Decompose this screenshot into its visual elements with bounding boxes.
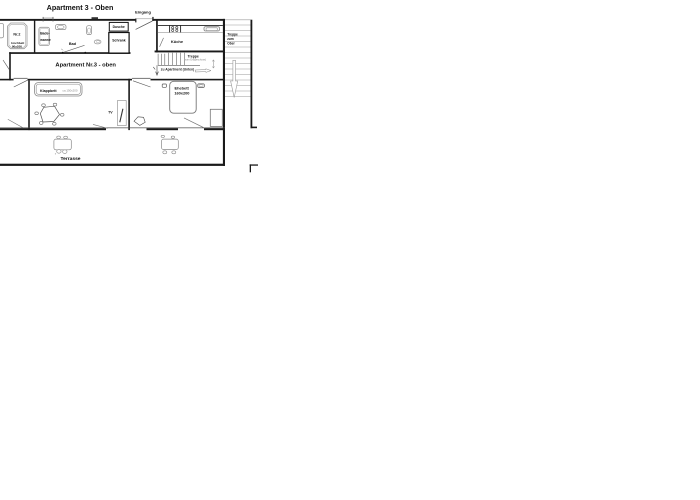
svg-text:TV: TV: [108, 111, 113, 115]
svg-text:wanne: wanne: [39, 38, 51, 42]
svg-text:zu Apartment (Unten): zu Apartment (Unten): [161, 67, 194, 71]
svg-text:Bade-: Bade-: [40, 32, 49, 36]
svg-text:Nr.2: Nr.2: [13, 32, 20, 36]
svg-text:90x200: 90x200: [12, 44, 22, 48]
svg-text:zum: zum: [227, 37, 234, 41]
svg-text:Treppe: Treppe: [227, 33, 238, 37]
svg-text:Schrank: Schrank: [112, 39, 125, 43]
svg-text:Terrasse: Terrasse: [60, 156, 80, 162]
svg-text:160x200: 160x200: [174, 90, 189, 95]
svg-text:Apartment Nr.3 - oben: Apartment Nr.3 - oben: [55, 62, 116, 68]
svg-text:Bad: Bad: [69, 42, 77, 46]
svg-text:Ober: Ober: [227, 41, 235, 45]
svg-text:Klappbett: Klappbett: [40, 89, 57, 93]
svg-text:(zum Erdgeschoss): (zum Erdgeschoss): [184, 57, 206, 61]
svg-text:Apartment 3 - Oben: Apartment 3 - Oben: [47, 3, 114, 12]
svg-text:Eingang: Eingang: [135, 10, 151, 15]
svg-text:Dusche: Dusche: [113, 25, 125, 29]
svg-text:ca.150x200: ca.150x200: [63, 89, 78, 93]
svg-text:Küche: Küche: [171, 39, 184, 44]
